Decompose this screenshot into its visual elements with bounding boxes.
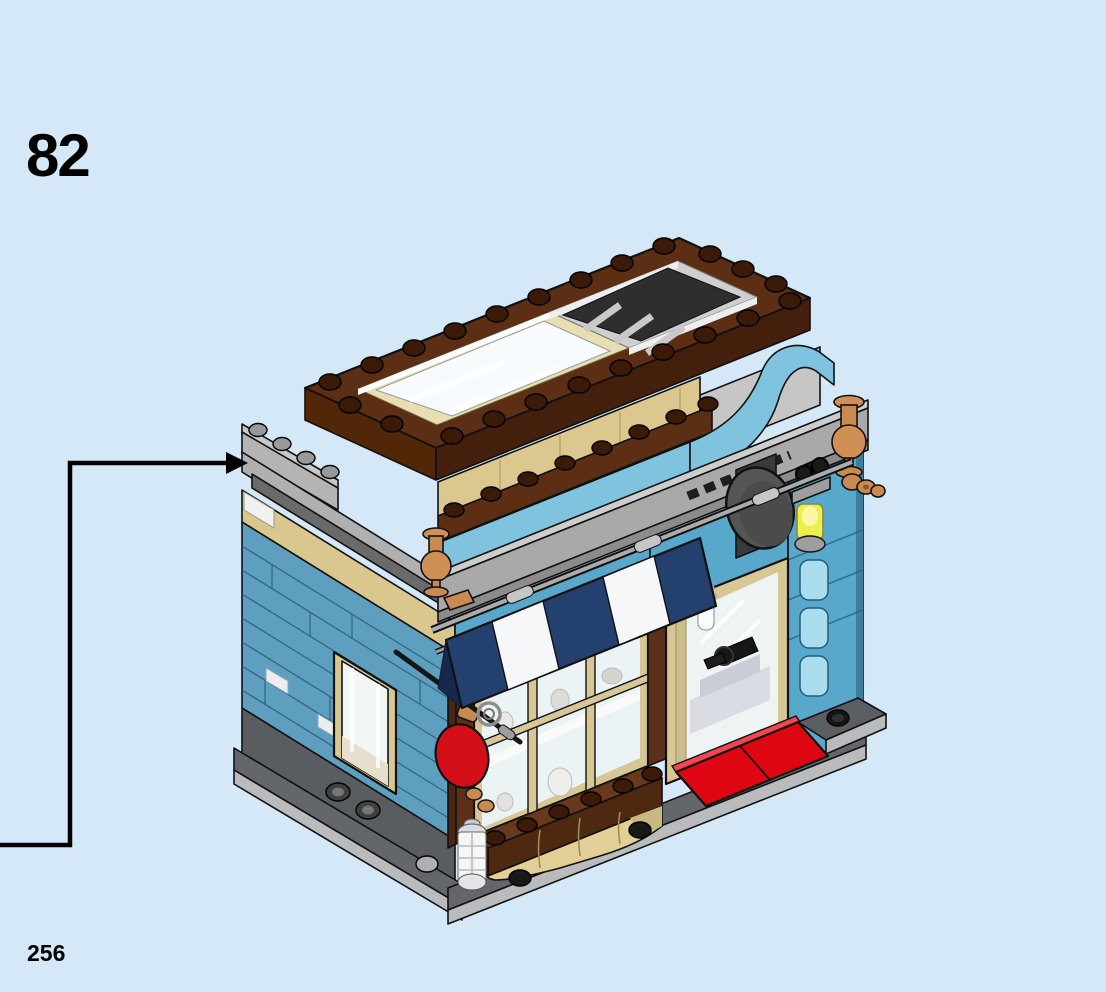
page-number: 256 (27, 940, 65, 967)
azure-panel-column (800, 560, 828, 696)
white-corner-lantern (458, 819, 486, 890)
callout-arrow (0, 452, 248, 845)
model-illustration (0, 0, 1106, 992)
round-plate (416, 856, 438, 872)
instruction-page: 82 (0, 0, 1106, 992)
